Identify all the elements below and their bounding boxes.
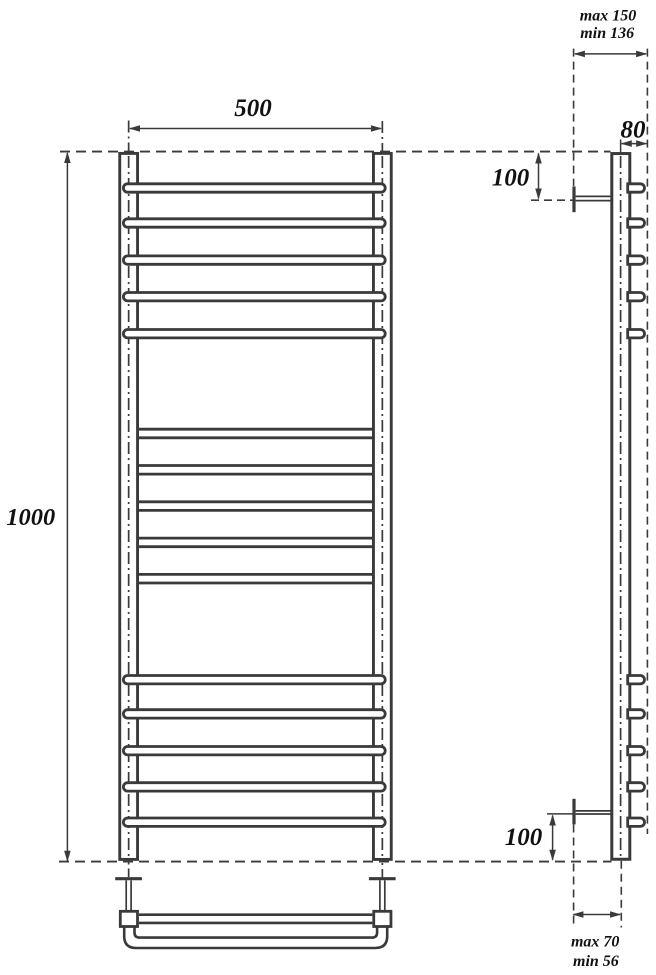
svg-text:500: 500: [234, 95, 272, 122]
svg-text:100: 100: [505, 824, 543, 851]
svg-text:min 56: min 56: [573, 953, 619, 970]
svg-text:1000: 1000: [6, 504, 55, 531]
svg-text:max 150: max 150: [580, 7, 636, 24]
svg-text:max 70: max 70: [571, 934, 619, 951]
svg-text:80: 80: [621, 116, 647, 143]
svg-text:100: 100: [492, 164, 530, 191]
svg-text:min 136: min 136: [580, 25, 634, 42]
